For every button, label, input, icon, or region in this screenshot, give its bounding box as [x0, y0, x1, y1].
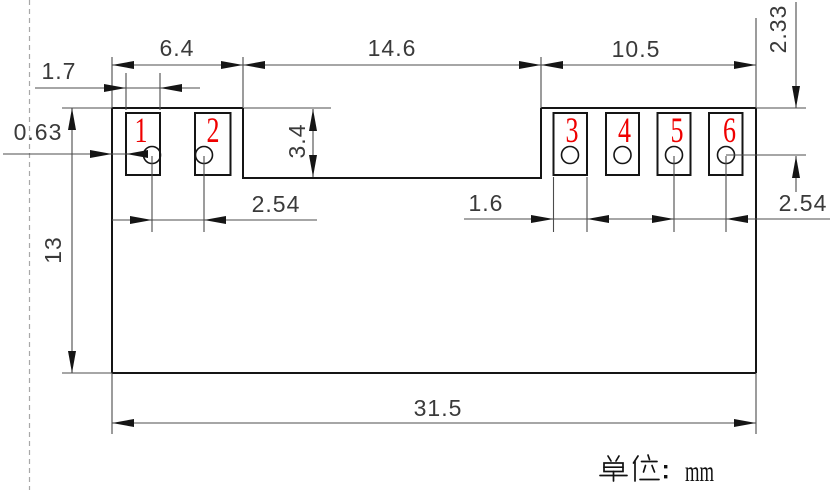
pin-number-5: 5 — [671, 110, 684, 150]
pin-numbers: 1 2 3 4 5 6 — [135, 110, 737, 150]
dim-label-1-6: 1.6 — [469, 190, 504, 216]
unit-cjk-dan-glyph — [600, 456, 627, 481]
dim-label-2-33: 2.33 — [765, 5, 791, 54]
dim-label-1-7: 1.7 — [42, 58, 77, 84]
dim-label-10-5: 10.5 — [612, 36, 661, 62]
pin-number-6: 6 — [723, 110, 736, 150]
dim-label-14-6: 14.6 — [368, 35, 417, 61]
pad-holes — [144, 147, 735, 164]
pin-number-3: 3 — [566, 110, 579, 150]
dimension-drawing: 1 2 3 4 5 6 — [0, 0, 836, 490]
unit-colon — [664, 465, 667, 478]
pin-number-2: 2 — [207, 110, 220, 150]
unit-cjk-wei-glyph — [634, 455, 660, 481]
dim-label-0-63: 0.63 — [14, 119, 63, 145]
pin-number-1: 1 — [135, 110, 148, 150]
dim-label-6-4: 6.4 — [160, 35, 195, 61]
dim-label-2-54-right: 2.54 — [779, 190, 828, 216]
dim-label-2-54-left: 2.54 — [252, 191, 301, 217]
dim-label-13: 13 — [40, 236, 66, 264]
dimension-labels: 6.4 14.6 10.5 1.7 0.63 2.54 1.6 2.54 31.… — [14, 5, 828, 421]
drawing-canvas: 1 2 3 4 5 6 — [0, 0, 836, 490]
dim-label-31-5: 31.5 — [414, 395, 463, 421]
unit-mm-text: mm — [685, 455, 714, 488]
unit-note: mm — [600, 455, 714, 488]
pin-number-4: 4 — [618, 110, 631, 150]
dim-label-3-4: 3.4 — [284, 124, 310, 159]
